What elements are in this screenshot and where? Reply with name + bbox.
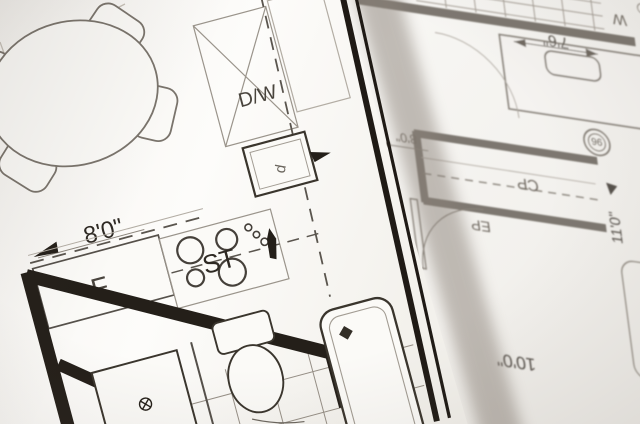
- stamp-label: 96: [590, 135, 603, 148]
- blueprint-photo: 7'6" W 96 CP: [0, 0, 640, 424]
- blueprint-art: 7'6" W 96 CP: [0, 0, 640, 424]
- panel-label: EP: [470, 215, 492, 235]
